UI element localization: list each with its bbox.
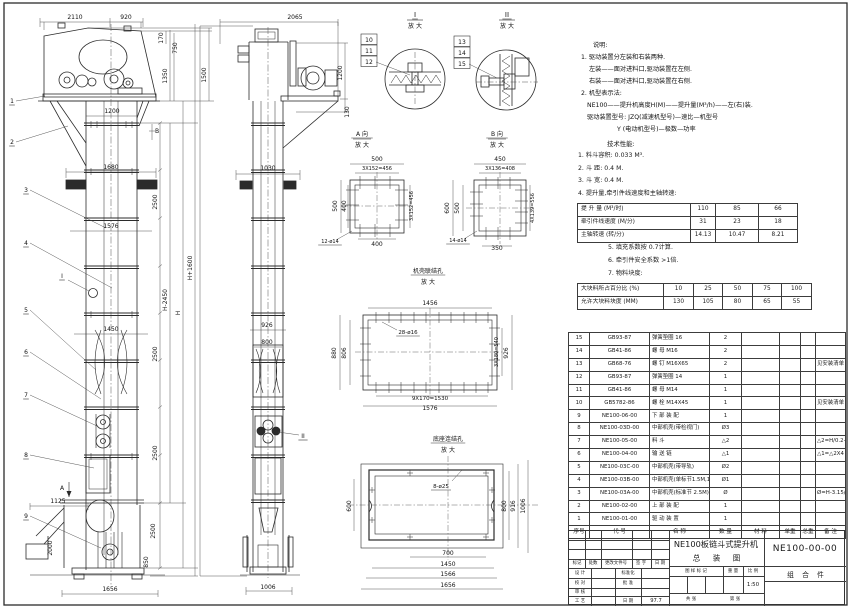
dim-label: 放 大: [500, 22, 514, 30]
tech-line: 2. 斗 距: 0.4 M.: [578, 163, 848, 176]
dim-label: 2500: [150, 523, 157, 538]
lump-row: 允许大块料块度 (MM) 130 105 80 65 55: [578, 297, 812, 310]
dim-label: 170: [158, 32, 165, 44]
notes-list: 1. 驱动装置分左装和右装两种.左装——面对进料口,驱动装置在左侧.右装——面对…: [573, 52, 845, 136]
rev-doc-label: 更改文件号: [605, 560, 627, 566]
view-a-enlarged: [341, 139, 412, 241]
dim-label: 28-ø16: [398, 330, 418, 336]
dim-label: I: [61, 273, 63, 280]
tech-line: 1. 料斗容积: 0.033 M³.: [578, 150, 848, 163]
dim-label: 3X152=456: [409, 191, 415, 221]
drawing-number: NE100-00-00: [773, 544, 838, 554]
bom-row: 2 NE100-02-00 上 部 装 配 1: [569, 500, 846, 513]
dim-label: 底座连结孔: [433, 435, 463, 443]
part-class: 组 合 件: [787, 569, 827, 579]
dim-label: 1450: [440, 561, 455, 568]
dim-label: 1576: [422, 405, 437, 412]
dim-label: 9X170=1530: [412, 396, 449, 402]
casing-joint-holes-view: [340, 308, 512, 406]
dim-label: 1006: [260, 584, 275, 591]
rev-date-label: 日 期: [655, 560, 665, 566]
dim-label: 5: [24, 307, 28, 314]
note-line: Y (电动机型号)—极数—功率: [617, 124, 845, 136]
dim-label: 8: [24, 452, 28, 459]
notes-section: 说明: 1. 驱动装置分左装和右装两种.左装——面对进料口,驱动装置在左侧.右装…: [573, 40, 845, 136]
dim-label: 7: [24, 392, 28, 399]
tech-line: 6. 牵引件安全系数 >1倍.: [608, 254, 848, 267]
detail-ii-view: [476, 20, 538, 110]
dim-label: 880: [331, 347, 338, 359]
rev-sign-label: 签 字: [636, 560, 646, 566]
dim-label: 806: [341, 347, 348, 359]
dim-label: 4: [24, 240, 28, 247]
review-label: 审 核: [575, 589, 585, 595]
dim-label: 920: [120, 14, 132, 21]
dim-label: 放 大: [408, 22, 422, 30]
dim-label: 4X139=556: [530, 193, 536, 223]
dim-label: 1680: [103, 164, 118, 171]
bom-row: 5 NE100-03C-00 中部机壳(带导轨) Ø2: [569, 461, 846, 474]
dim-label: 600: [444, 202, 451, 214]
rev-count-label: 处数: [589, 560, 598, 566]
dim-label: 1456: [422, 300, 437, 307]
dim-label: 1200: [337, 65, 344, 80]
dim-label: 926: [503, 347, 510, 359]
dim-label: 3X152=456: [362, 166, 392, 172]
dim-label: 11: [365, 48, 373, 55]
dim-label: 机壳联结孔: [413, 267, 443, 275]
std-label: 标准化: [621, 570, 634, 576]
bom-row: 1 NE100-01-00 驱 动 装 置 1: [569, 513, 846, 526]
dim-label: 500: [332, 200, 339, 212]
dim-label: 700: [442, 550, 454, 557]
dim-label: 13: [458, 39, 466, 46]
date-value: 97.7: [650, 598, 662, 604]
capacity-table: 提 升 量 (M³/时) 110 85 66 牵引件线速度 (M/分) 31 2…: [577, 203, 798, 243]
dim-label: 600: [346, 500, 353, 512]
tech-list-2: 5. 填充系数按 0.7计算.6. 牵引件安全系数 >1倍.7. 物料块度:: [608, 241, 848, 280]
bom-row: 13 GB68-76 螺 钉 M16X65 2 见安装清单: [569, 358, 846, 371]
dimension-lines: [30, 18, 348, 597]
stamp-mark-label: 图 样 标 记: [685, 568, 707, 574]
dim-label: A 向: [356, 130, 368, 138]
dim-label: 2000: [47, 540, 54, 555]
dim-label: 2500: [152, 346, 159, 361]
scale-value: 1:50: [747, 582, 759, 588]
lump-row: 大块料所占百分比 (%) 10 25 50 75 100: [578, 284, 812, 297]
dim-label: I: [414, 11, 416, 19]
dim-label: 2500: [152, 445, 159, 460]
dim-label: 1125: [50, 498, 65, 505]
note-line: 左装——面对进料口,驱动装置在左侧.: [589, 64, 845, 76]
rev-mark-label: 标记: [573, 560, 582, 566]
tech-line: 3. 斗 宽: 0.4 M.: [578, 175, 848, 188]
dim-label: 3: [24, 187, 28, 194]
bom-row: 14 GB41-86 螺 母 M16 2: [569, 345, 846, 358]
dim-label: 12: [365, 59, 373, 66]
dim-label: 500: [371, 156, 383, 163]
base-holes-view: [348, 456, 540, 589]
dim-label: 3X180=540: [494, 337, 500, 367]
dim-label: 1030: [260, 165, 275, 172]
dim-label: 14-ø14: [449, 238, 467, 244]
note-line: 驱动装置型号: JZQ(减速机型号)—速比—机型号: [587, 112, 845, 124]
dim-label: 1566: [440, 571, 455, 578]
dim-label: 9: [24, 513, 28, 520]
dim-label: 1576: [103, 223, 118, 230]
dim-label: 926: [261, 322, 273, 329]
bom-row: 4 NE100-03B-00 中部机壳(单标节1.5M,1M) Ø1: [569, 474, 846, 487]
dim-label: 916: [510, 500, 517, 512]
dim-label: 1: [10, 98, 14, 105]
dim-label: 500: [454, 202, 461, 214]
dim-label: 850: [143, 556, 150, 568]
design-label: 设 计: [575, 570, 585, 576]
dim-label: 放 大: [421, 278, 435, 286]
dim-label: 10: [365, 37, 373, 44]
bom-row: 8 NE100-03D-00 中部机壳(带检视门) Ø3: [569, 423, 846, 436]
side-elevation-view: [238, 27, 340, 578]
bom-row: 15 GB93-87 弹簧垫圈 16 2: [569, 333, 846, 346]
bom-row: 12 GB93-87 弹簧垫圈 14 1: [569, 371, 846, 384]
dim-label: 1006: [520, 498, 527, 513]
tech-list: 1. 料斗容积: 0.033 M³.2. 斗 距: 0.4 M.3. 斗 宽: …: [578, 150, 848, 200]
dim-label: H+1600: [187, 255, 194, 280]
bom-row: 6 NE100-04-00 输 送 链 △1 △1=△2X4: [569, 449, 846, 462]
dim-label: 1656: [102, 586, 117, 593]
note-line: 2. 机型表示法:: [581, 88, 845, 100]
dim-label: 2110: [67, 14, 82, 21]
dim-label: 1200: [104, 108, 119, 115]
dim-label: H: [175, 311, 182, 316]
tech-heading: 技术性能:: [607, 139, 635, 148]
dim-label: 750: [172, 42, 179, 54]
tech-line: 7. 物料块度:: [608, 267, 848, 280]
dim-label: 8-ø25: [433, 484, 449, 490]
note-line: NE100——提升机高度H(M)——提升量(M³/h)——左(右)装.: [587, 100, 845, 112]
bom-table: 15 GB93-87 弹簧垫圈 16 2 14 GB41-86 螺 母 M16 …: [568, 332, 846, 539]
date-label: 日 期: [623, 598, 633, 604]
dim-label: 3X136=408: [485, 166, 515, 172]
stamp-scale-label: 比 例: [748, 568, 758, 574]
sheets-total-label: 共 张: [686, 596, 696, 602]
dim-label: 15: [458, 61, 466, 68]
dim-label: 放 大: [355, 141, 369, 149]
note-line: 右装——面对进料口,驱动装置在右侧.: [589, 76, 845, 88]
dim-label: 放 大: [490, 141, 504, 149]
dim-label: B 向: [491, 130, 503, 138]
dim-label: II: [505, 11, 509, 19]
dim-label: 400: [371, 241, 383, 248]
dim-label: 400: [341, 200, 348, 212]
dim-label: 2: [10, 139, 14, 146]
lump-size-table: 大块料所占百分比 (%) 10 25 50 75 100 允许大块料块度 (MM…: [577, 283, 812, 310]
detail-i-view: [385, 20, 445, 109]
capacity-row: 主轴转速 (转/分) 14.13 10.47 8.21: [578, 230, 798, 243]
stamp-weight-label: 重 量: [728, 568, 738, 574]
sheet-no-label: 第 张: [730, 596, 740, 602]
notes-heading: 说明:: [593, 40, 845, 52]
dim-label: 800: [261, 339, 273, 346]
dim-label: 1656: [440, 582, 455, 589]
dim-label: 2065: [287, 14, 302, 21]
dim-label: 1350: [162, 68, 169, 83]
dim-label: 2500: [152, 194, 159, 209]
dim-label: 14: [458, 50, 466, 57]
bom-row: 7 NE100-05-00 料 斗 △2 △2=H/0.2+5.75: [569, 436, 846, 449]
drawing-title: NE100板链斗式提升机: [674, 538, 758, 550]
tech-line: 4. 提升量,牵引件线速度和主轴转速:: [578, 188, 848, 201]
bom-row: 10 GB5782-86 螺 栓 M14X45 1 见安装清单: [569, 397, 846, 410]
dim-label: II: [301, 433, 305, 440]
dim-label: H-2450: [162, 289, 169, 311]
bom-row: 9 NE100-06-00 下 部 装 配 1: [569, 410, 846, 423]
dim-label: 800: [501, 500, 508, 512]
drawing-subtitle: 总 装 图: [693, 553, 746, 564]
dim-label: 1450: [103, 326, 118, 333]
bom-row: 3 NE100-03A-00 中部机壳(标准节 2.5M) Ø Ø=H-3.15…: [569, 487, 846, 500]
capacity-row: 提 升 量 (M³/时) 110 85 66: [578, 204, 798, 217]
front-elevation-view: [26, 23, 165, 585]
dim-label: 放 大: [441, 446, 455, 454]
check-label: 校 对: [575, 580, 585, 586]
dim-label: 6: [24, 349, 28, 356]
capacity-row: 牵引件线速度 (M/分) 31 23 18: [578, 217, 798, 230]
approve-label: 批 准: [623, 580, 633, 586]
dim-label: 130: [344, 106, 351, 118]
bom-row: 11 GB41-86 螺 母 M14 1: [569, 384, 846, 397]
craft-label: 工 艺: [575, 598, 585, 604]
dim-label: A: [60, 485, 65, 492]
dim-label: 12-ø14: [321, 239, 339, 245]
dim-label: B: [155, 128, 159, 135]
dim-label: 1500: [201, 67, 208, 82]
title-block: 标记 处数 更改文件号 签 字 日 期 设 计 标准化 校 对 批 准 审 核 …: [568, 530, 845, 605]
note-line: 1. 驱动装置分左装和右装两种.: [581, 52, 845, 64]
drawing-sheet: 2110920170750135015001200B168025001576H-…: [0, 0, 850, 609]
dim-label: 450: [494, 156, 506, 163]
dim-label: 350: [491, 245, 503, 252]
